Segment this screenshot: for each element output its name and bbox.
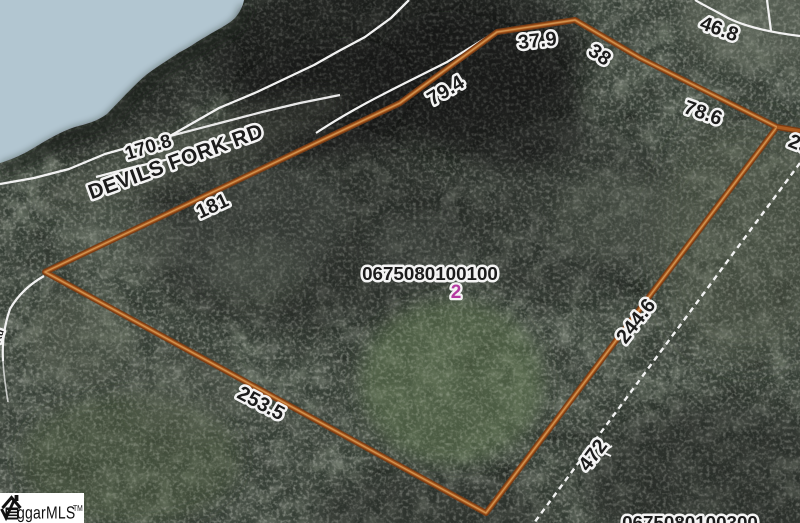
svg-text:37.9: 37.9: [517, 28, 558, 54]
svg-text:TM: TM: [73, 503, 83, 513]
svg-text:ggarMLS: ggarMLS: [17, 504, 75, 523]
svg-text:2: 2: [451, 282, 462, 303]
svg-text:0675080100300: 0675080100300: [622, 512, 758, 523]
svg-text:0675080100100: 0675080100100: [362, 263, 498, 284]
